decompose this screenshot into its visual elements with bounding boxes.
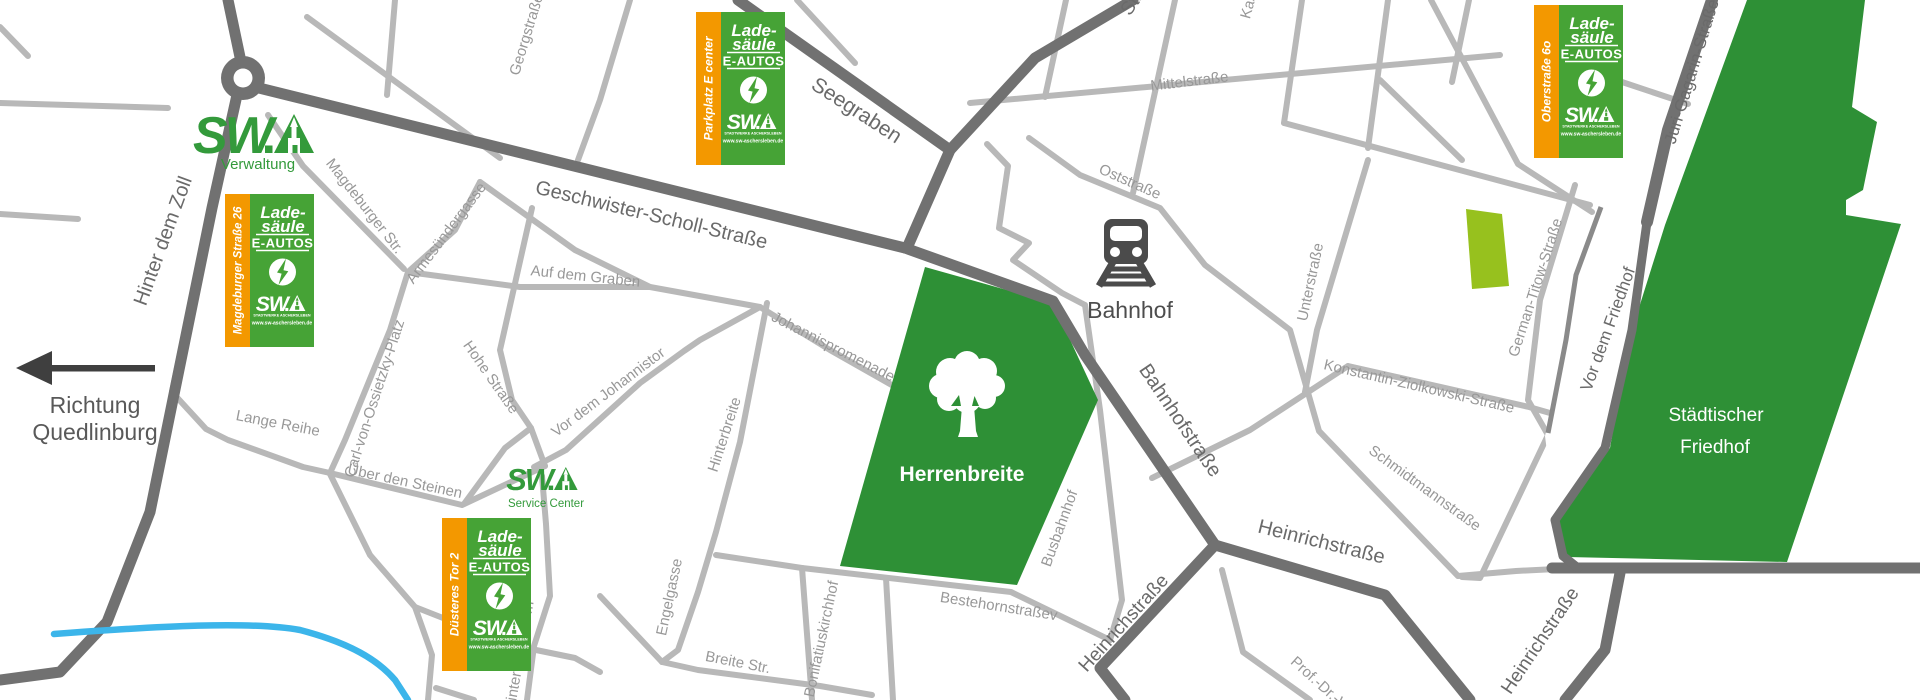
svg-text:Magdeburger Straße 26: Magdeburger Straße 26 [233, 206, 245, 334]
svg-text:Parkplatz E center: Parkplatz E center [702, 35, 716, 140]
svg-text:Herrenbreite: Herrenbreite [900, 463, 1025, 486]
svg-text:Quedlinburg: Quedlinburg [32, 419, 157, 445]
svg-text:Bahnhof: Bahnhof [1087, 297, 1173, 323]
svg-text:Friedhof: Friedhof [1680, 437, 1750, 458]
svg-text:Richtung: Richtung [50, 392, 141, 418]
svg-text:Verwaltung: Verwaltung [221, 156, 295, 173]
svg-text:Service Center: Service Center [508, 498, 584, 510]
svg-text:Oberstraße 6o: Oberstraße 6o [1540, 41, 1554, 122]
svg-text:Düsteres Tor 2: Düsteres Tor 2 [448, 552, 462, 636]
svg-text:Städtischer: Städtischer [1668, 405, 1764, 426]
